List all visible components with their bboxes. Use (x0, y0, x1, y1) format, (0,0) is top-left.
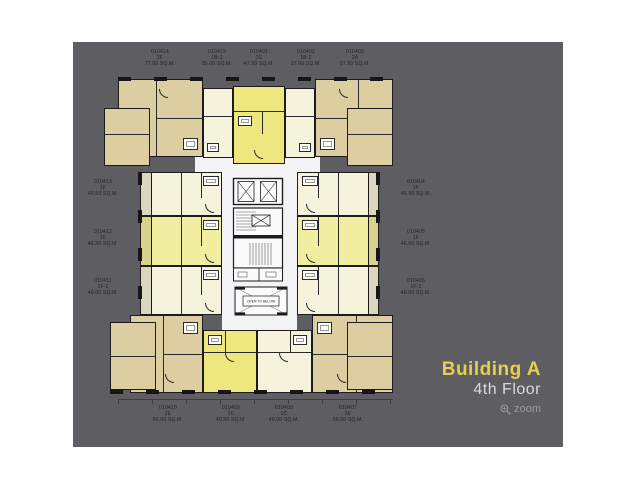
door-arc (225, 353, 234, 362)
wall-line (338, 173, 339, 215)
wall-line (156, 118, 202, 119)
unit-label-010413: 010413 1F 46.50 SQ.M. (71, 180, 135, 198)
floorplan-page: OPEN TO BELOW 010414 2F 77.00 SQ.M. 0104… (0, 0, 640, 480)
bath-fixture (203, 176, 219, 186)
core-diagram: OPEN TO BELOW (230, 175, 292, 320)
magnifier-icon (500, 404, 511, 415)
door-arc (205, 254, 214, 263)
door-arc (306, 303, 315, 312)
unit-010411 (140, 266, 222, 315)
unit-area: 46.00 SQ.M. (71, 291, 135, 297)
unit-label-010412: 010412 1F 46.50 SQ.M. (71, 230, 135, 248)
unit-010409 (203, 330, 257, 393)
door-arc (254, 150, 263, 159)
wall-line (201, 173, 202, 198)
bath-fixture (293, 335, 307, 345)
wall-line (105, 134, 149, 135)
building-title: Building A (320, 360, 541, 380)
wall-marks-left (138, 172, 142, 315)
zoom-control[interactable]: zoom (320, 403, 541, 415)
wall-line (201, 217, 202, 246)
unit-label-010414: 010414 2F 77.00 SQ.M. (128, 50, 192, 68)
unit-label-010411: 010411 1F-1 46.00 SQ.M. (71, 279, 135, 297)
unit-010408 (257, 330, 312, 393)
unit-area: 57.50 SQ.M. (323, 62, 387, 68)
wall-line (348, 134, 392, 135)
wall-marks-top (118, 77, 393, 81)
door-arc (205, 204, 214, 213)
door-arc (339, 89, 348, 98)
stairs-icon (234, 208, 283, 268)
unit-010406 (297, 266, 379, 315)
unit-010412 (140, 216, 222, 266)
unit-area: 66.00 SQ.M. (136, 418, 200, 424)
unit-area: 46.50 SQ.M. (384, 192, 448, 198)
zoom-label: zoom (514, 403, 541, 415)
unit-label-010406: 010406 1F-1 46.00 SQ.M. (384, 279, 448, 297)
unit-area: 66.00 SQ.M. (316, 418, 380, 424)
wall-line (348, 356, 392, 357)
unit-010413 (140, 172, 222, 216)
unit-010414-wing (104, 108, 150, 166)
unit-area: 46.50 SQ.M. (384, 242, 448, 248)
bath-fixture (203, 220, 219, 230)
wall-line (225, 331, 226, 352)
bath-fixture (317, 322, 332, 334)
wall-line (181, 267, 182, 314)
bath-fixture (203, 270, 219, 280)
unit-area: 46.50 SQ.M. (71, 242, 135, 248)
unit-label-010404: 010404 1F 46.50 SQ.M. (384, 180, 448, 198)
wall-line (234, 111, 284, 112)
door-arc (306, 204, 315, 213)
unit-label-010405: 010405 1F 46.50 SQ.M. (384, 230, 448, 248)
unit-area: 40.00 SQ.M. (252, 418, 316, 424)
open-to-below-box: OPEN TO BELOW (235, 287, 287, 315)
unit-label-010403: 010403 2A 57.50 SQ.M. (323, 50, 387, 68)
wall-line (286, 116, 314, 117)
wall-line (318, 217, 319, 246)
wall-line (181, 173, 182, 215)
wall-line (318, 267, 319, 295)
elevator-icon (234, 179, 283, 205)
bath-fixture (302, 270, 318, 280)
unit-area: 77.00 SQ.M. (128, 62, 192, 68)
bath-fixture (183, 322, 198, 334)
unit-010401 (233, 86, 285, 164)
door-arc (165, 374, 174, 383)
wall-line (338, 217, 339, 265)
bath-fixture (183, 138, 198, 150)
unit-label-010408: 010408 1C 40.00 SQ.M. (252, 406, 316, 424)
unit-label-010410: 010410 2E 66.00 SQ.M. (136, 406, 200, 424)
door-arc (159, 89, 168, 98)
bath-fixture (207, 143, 219, 152)
unit-area: 46.00 SQ.M. (384, 291, 448, 297)
unit-010404 (297, 172, 379, 216)
wall-line (204, 116, 232, 117)
door-arc (205, 303, 214, 312)
wall-marks-right (376, 172, 380, 315)
wall-line (181, 217, 182, 265)
bath-fixture (302, 220, 318, 230)
wall-line (163, 354, 202, 355)
unit-010403-wing (347, 108, 393, 166)
wall-line (338, 267, 339, 314)
bath-fixture (208, 335, 222, 345)
door-arc (306, 254, 315, 263)
service-rooms (234, 268, 283, 281)
floor-title: 4th Floor (320, 381, 541, 399)
open-to-below-label: OPEN TO BELOW (247, 300, 276, 304)
unit-010405 (297, 216, 379, 266)
unit-010402 (285, 88, 315, 158)
wall-line (201, 267, 202, 295)
bath-fixture (238, 116, 252, 126)
wall-line (290, 331, 291, 352)
unit-010415 (203, 88, 233, 158)
door-arc (279, 353, 288, 362)
branding-block: Building A 4th Floor zoom (320, 360, 541, 415)
unit-area: 46.50 SQ.M. (71, 192, 135, 198)
bath-fixture (299, 143, 311, 152)
wall-line (262, 111, 263, 134)
wall-line (318, 173, 319, 198)
unit-010410-wing (110, 322, 156, 390)
bath-fixture (302, 176, 318, 186)
bath-fixture (320, 138, 335, 150)
wall-line (111, 356, 155, 357)
